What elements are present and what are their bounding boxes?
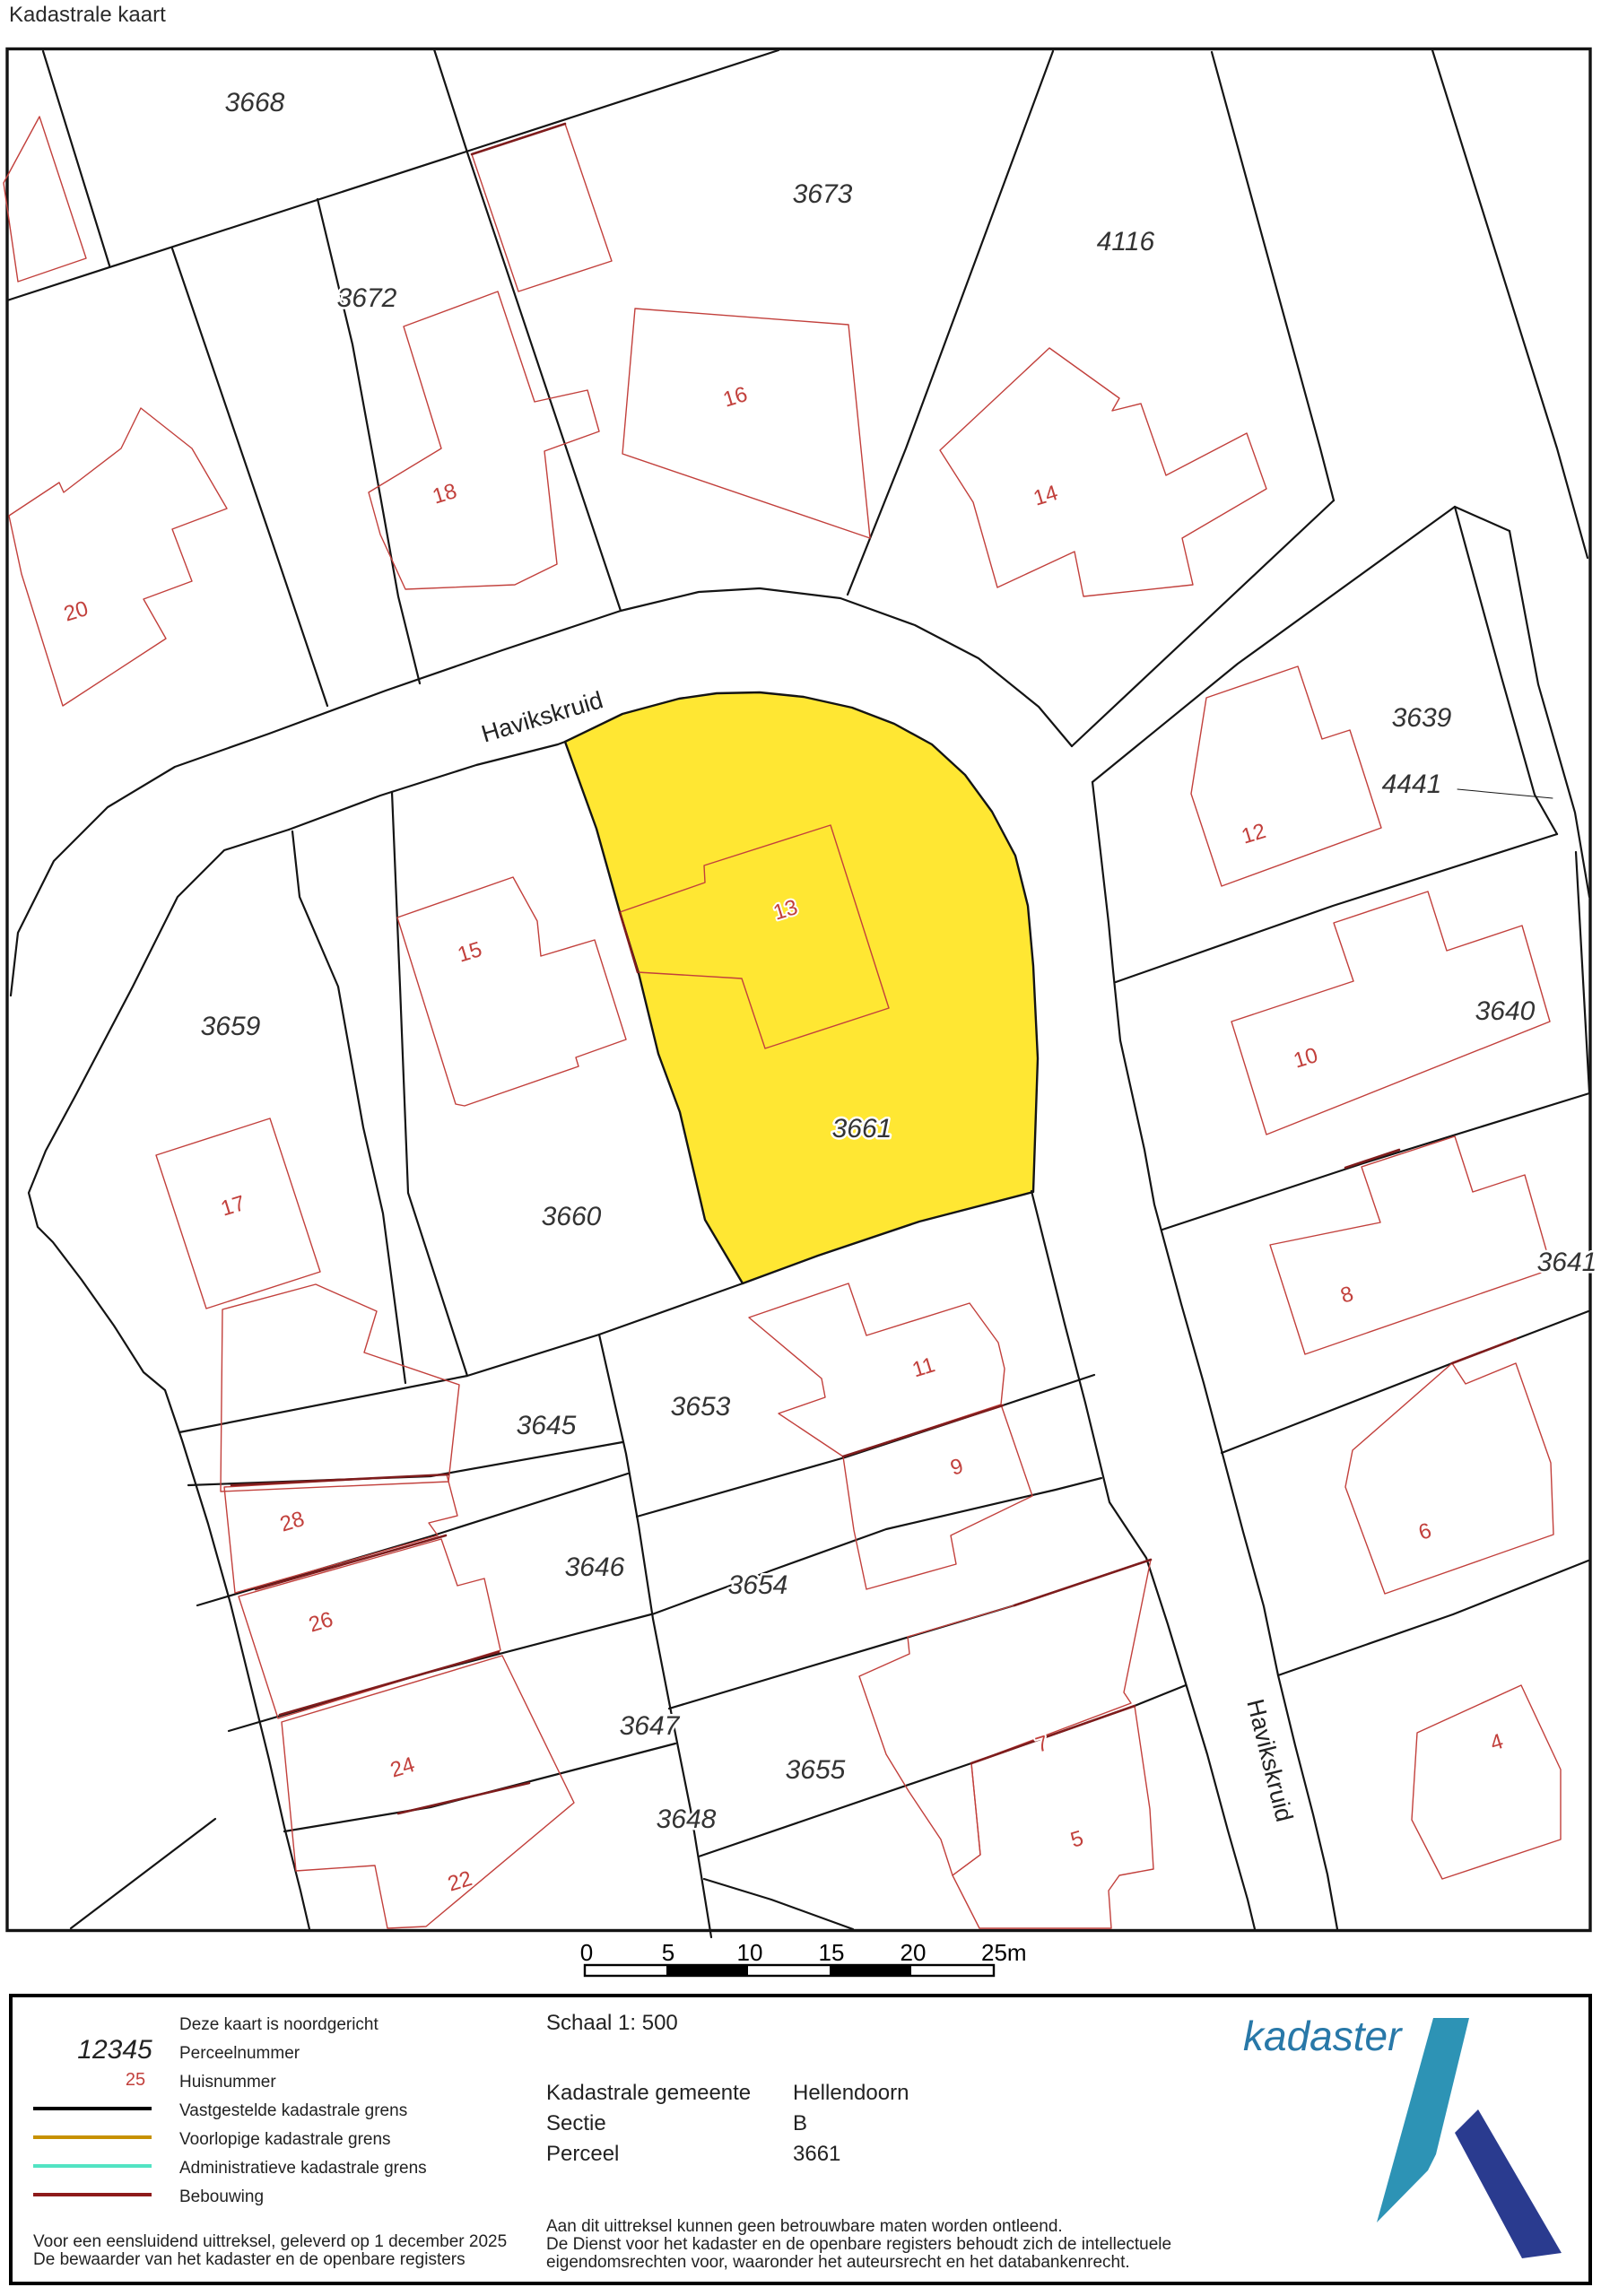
svg-text:B: B xyxy=(793,2111,807,2135)
svg-text:3655: 3655 xyxy=(786,1755,846,1785)
svg-text:3640: 3640 xyxy=(1475,996,1536,1026)
svg-text:3648: 3648 xyxy=(657,1805,717,1834)
svg-text:Voorlopige kadastrale grens: Voorlopige kadastrale grens xyxy=(179,2130,391,2149)
svg-text:3660: 3660 xyxy=(542,1202,602,1231)
svg-text:3661: 3661 xyxy=(793,2142,840,2166)
svg-text:kadaster: kadaster xyxy=(1243,2013,1403,2059)
svg-text:De bewaarder van het kadaster: De bewaarder van het kadaster en de open… xyxy=(33,2250,466,2269)
svg-text:5: 5 xyxy=(662,1939,674,1966)
svg-text:15: 15 xyxy=(819,1939,845,1966)
svg-text:3654: 3654 xyxy=(728,1570,788,1600)
svg-text:Vastgestelde kadastrale grens: Vastgestelde kadastrale grens xyxy=(179,2101,407,2120)
svg-text:3647: 3647 xyxy=(620,1711,681,1741)
svg-text:4116: 4116 xyxy=(1097,227,1155,257)
svg-text:25m: 25m xyxy=(981,1939,1027,1966)
svg-text:Schaal 1: 500: Schaal 1: 500 xyxy=(546,2011,678,2035)
svg-text:3639: 3639 xyxy=(1392,703,1452,733)
svg-text:3645: 3645 xyxy=(517,1411,577,1440)
svg-text:0: 0 xyxy=(580,1939,593,1966)
svg-text:Perceel: Perceel xyxy=(546,2142,619,2166)
svg-text:Huisnummer: Huisnummer xyxy=(179,2073,276,2092)
svg-text:Bebouwing: Bebouwing xyxy=(179,2187,264,2206)
svg-text:3659: 3659 xyxy=(201,1012,261,1041)
svg-text:Perceelnummer: Perceelnummer xyxy=(179,2044,300,2063)
svg-text:4441: 4441 xyxy=(1382,770,1442,799)
svg-text:20: 20 xyxy=(901,1939,927,1966)
svg-text:Kadastrale kaart: Kadastrale kaart xyxy=(9,3,166,27)
svg-text:3661: 3661 xyxy=(832,1114,892,1144)
svg-text:3668: 3668 xyxy=(225,88,285,117)
svg-text:Sectie: Sectie xyxy=(546,2111,606,2135)
svg-text:10: 10 xyxy=(737,1939,763,1966)
svg-text:Kadastrale gemeente: Kadastrale gemeente xyxy=(546,2081,751,2105)
svg-text:Voor een eensluidend uittrekse: Voor een eensluidend uittreksel, gelever… xyxy=(33,2232,507,2251)
svg-text:Hellendoorn: Hellendoorn xyxy=(793,2081,909,2105)
svg-text:De Dienst voor het kadaster en: De Dienst voor het kadaster en de openba… xyxy=(546,2235,1171,2254)
svg-text:3641: 3641 xyxy=(1537,1248,1597,1277)
svg-text:3646: 3646 xyxy=(565,1552,625,1582)
svg-text:Administratieve kadastrale gre: Administratieve kadastrale grens xyxy=(179,2159,427,2178)
svg-text:3673: 3673 xyxy=(793,179,853,209)
svg-text:eigendomsrechten voor, waarond: eigendomsrechten voor, waaronder het aut… xyxy=(546,2253,1130,2272)
svg-text:3653: 3653 xyxy=(671,1392,731,1422)
svg-text:12345: 12345 xyxy=(77,2035,152,2065)
svg-text:Deze kaart is noordgericht: Deze kaart is noordgericht xyxy=(179,2015,378,2034)
svg-text:Aan dit uittreksel kunnen geen: Aan dit uittreksel kunnen geen betrouwba… xyxy=(546,2217,1063,2236)
svg-text:3672: 3672 xyxy=(337,283,397,313)
svg-text:25: 25 xyxy=(126,2070,145,2090)
